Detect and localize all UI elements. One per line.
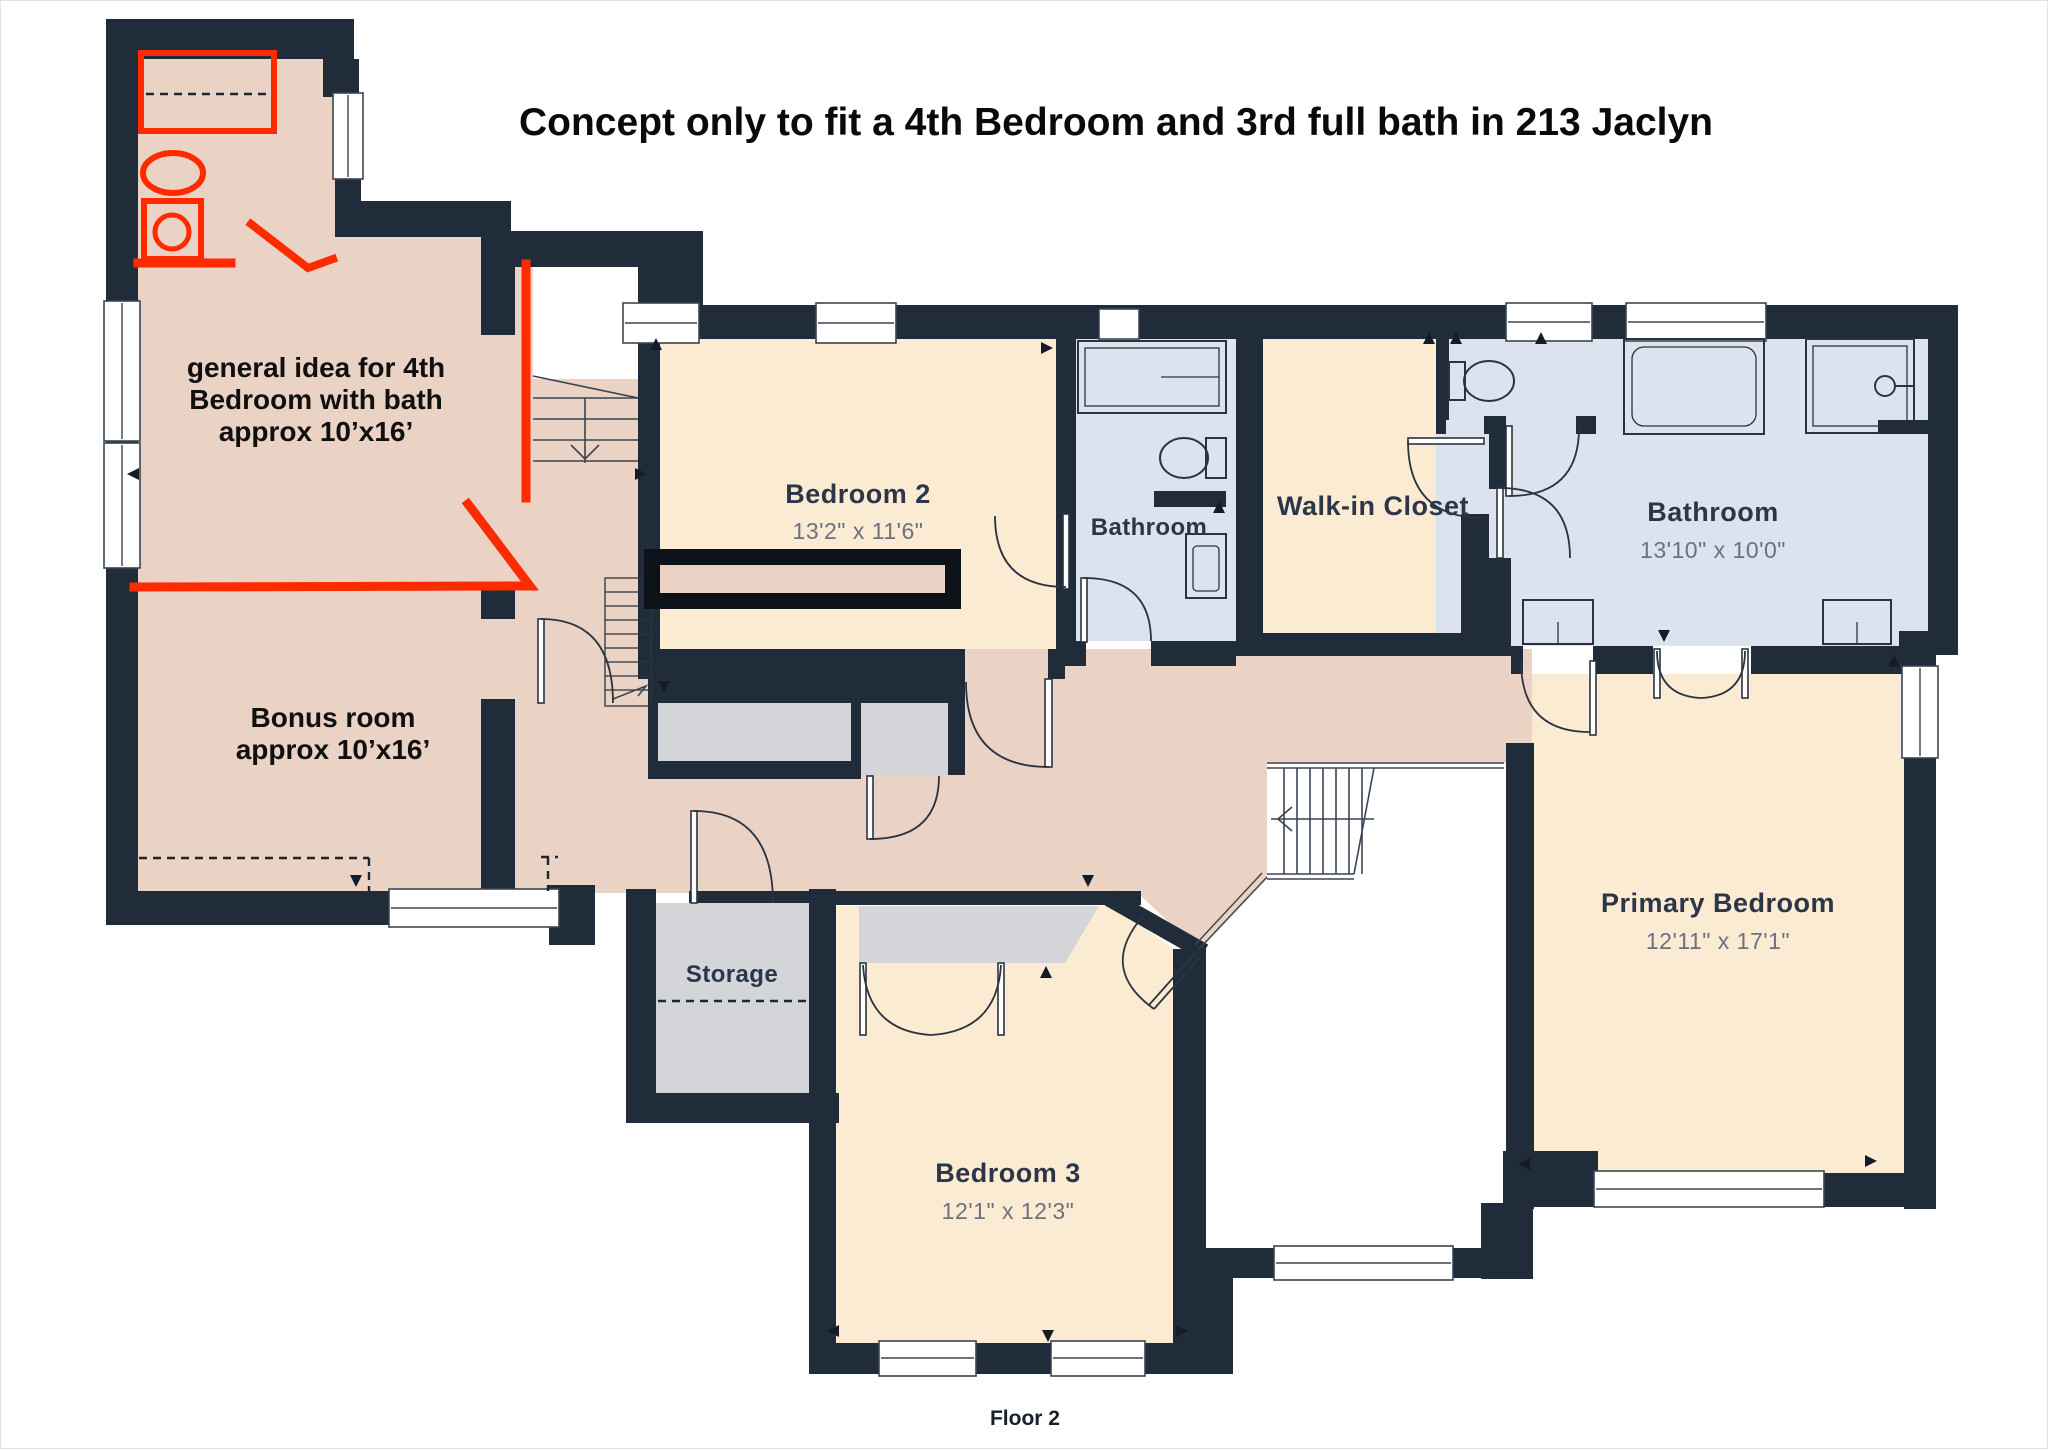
- room-walk-in-closet: [1263, 339, 1436, 633]
- window: [1099, 309, 1139, 339]
- room-label-walk-in-closet: Walk-in Closet: [1277, 491, 1469, 521]
- room-label-bedroom2: Bedroom 2: [785, 479, 931, 509]
- floor-plan-svg: Concept only to fit a 4th Bedroom and 3r…: [1, 1, 2048, 1450]
- door-bonus: [538, 619, 544, 703]
- door-hall-bathroom: [1081, 578, 1087, 642]
- door-bedroom2: [1045, 679, 1052, 767]
- door-primary-entry: [1590, 661, 1596, 735]
- floor-label: Floor 2: [990, 1407, 1060, 1430]
- room-label-hall-bathroom: Bathroom: [1091, 514, 1208, 541]
- door-primary-bathroom: [1497, 488, 1503, 558]
- page-title: Concept only to fit a 4th Bedroom and 3r…: [519, 101, 1713, 144]
- room-bedroom4-concept: [138, 59, 511, 586]
- door-bathroom-bedroom2: [1063, 514, 1069, 589]
- door-hall-closet: [867, 776, 873, 839]
- note-bedroom4-line3: approx 10’x16’: [219, 416, 414, 447]
- room-primary-bedroom: [1532, 674, 1904, 1173]
- room-label-primary-bedroom: Primary Bedroom: [1601, 888, 1835, 918]
- bedroom2-closet-bar: [644, 549, 961, 609]
- room-dims-primary-bedroom: 12'11" x 17'1": [1646, 928, 1790, 954]
- door-walk-in-closet: [1408, 438, 1484, 444]
- room-fills: [138, 59, 1928, 1343]
- room-dims-bedroom3: 12'1" x 12'3": [942, 1198, 1075, 1224]
- hall-closet-left: [658, 703, 851, 761]
- bedroom3-closet: [859, 906, 1099, 963]
- note-bedroom4-line2: Bedroom with bath: [189, 384, 443, 415]
- floor-plan-page: Concept only to fit a 4th Bedroom and 3r…: [0, 0, 2048, 1449]
- note-bonus-line1: Bonus room: [251, 702, 416, 733]
- room-label-bedroom3: Bedroom 3: [935, 1158, 1081, 1188]
- door-toilet-closet: [1506, 426, 1512, 496]
- room-hall-bathroom: [1076, 339, 1236, 641]
- room-dims-primary-bathroom: 13'10" x 10'0": [1640, 537, 1786, 563]
- room-storage: [654, 903, 809, 1093]
- hall-closet-right: [861, 703, 948, 775]
- note-bonus-line2: approx 10’x16’: [236, 734, 431, 765]
- door-storage: [691, 811, 697, 903]
- note-bedroom4-line1: general idea for 4th: [187, 352, 445, 383]
- room-label-storage: Storage: [686, 961, 778, 988]
- room-dims-bedroom2: 13'2" x 11'6": [793, 518, 924, 544]
- room-label-primary-bathroom: Bathroom: [1647, 497, 1779, 527]
